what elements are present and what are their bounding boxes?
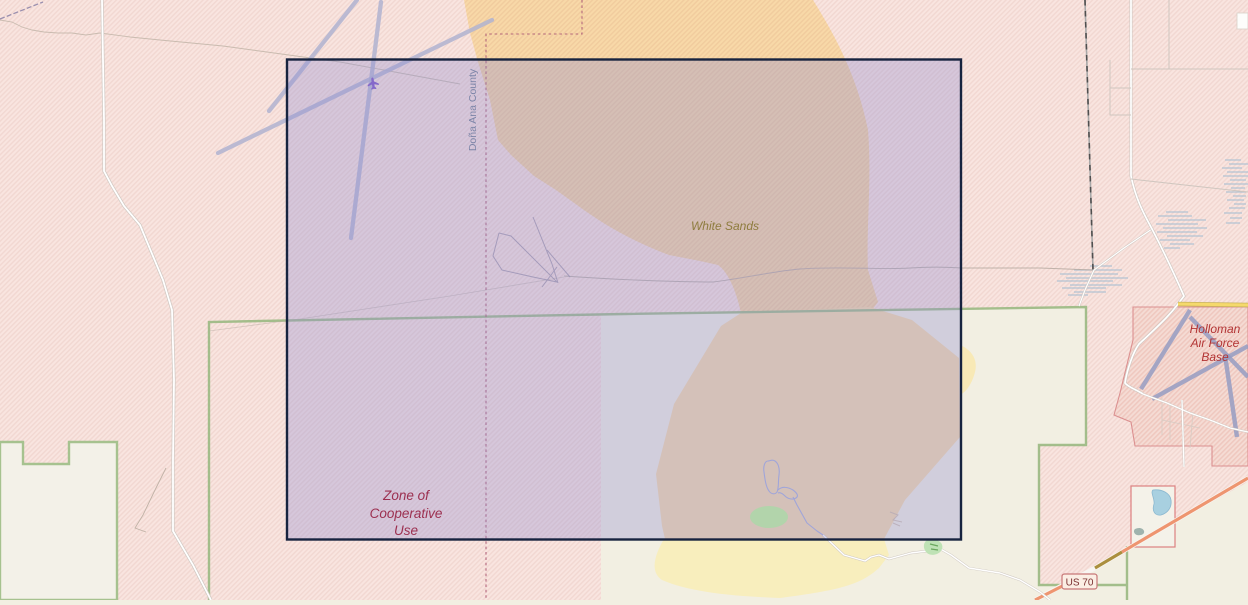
svg-text:Cooperative: Cooperative	[370, 506, 443, 521]
svg-text:Holloman: Holloman	[1190, 322, 1241, 336]
svg-text:Doña Ana County: Doña Ana County	[467, 68, 479, 151]
svg-text:Use: Use	[394, 523, 418, 538]
svg-text:Air Force: Air Force	[1190, 336, 1240, 350]
svg-text:Base: Base	[1201, 350, 1229, 364]
svg-text:Zone of: Zone of	[382, 488, 430, 503]
svg-text:US 70: US 70	[1066, 578, 1094, 589]
svg-text:White Sands: White Sands	[691, 219, 759, 233]
